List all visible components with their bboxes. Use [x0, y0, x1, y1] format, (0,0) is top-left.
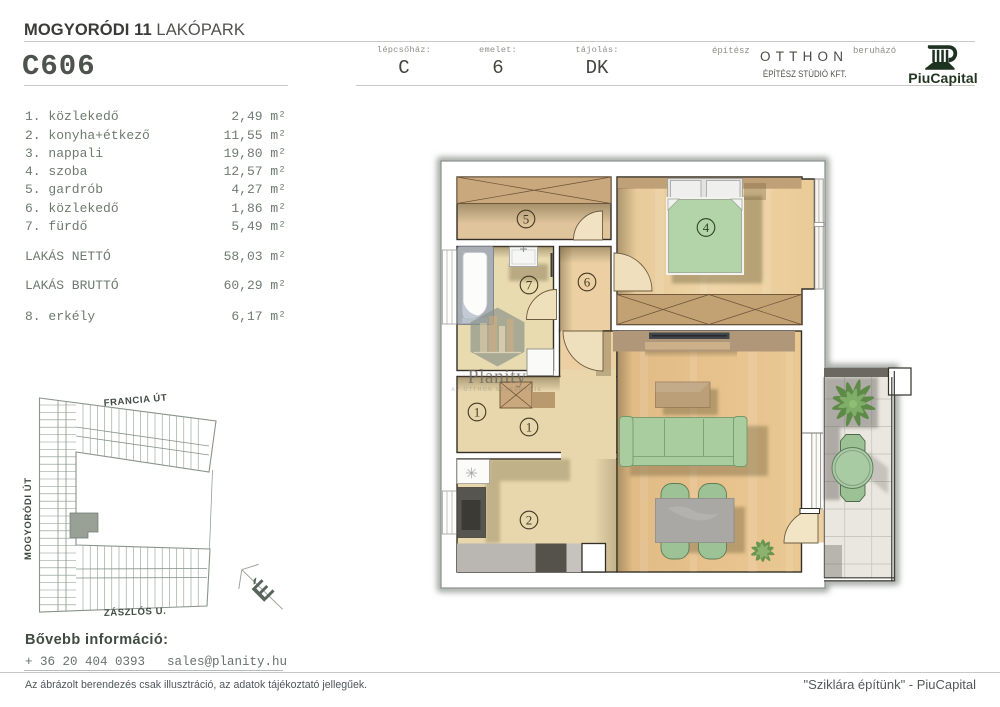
svg-text:AZ OTTHON SZAKÉRTŐJE: AZ OTTHON SZAKÉRTŐJE	[452, 386, 543, 393]
svg-text:2: 2	[526, 513, 533, 528]
svg-text:Planity: Planity	[468, 367, 527, 388]
svg-text:5: 5	[523, 212, 530, 227]
svg-text:4: 4	[703, 220, 710, 235]
svg-text:FRANCIA ÚT: FRANCIA ÚT	[103, 391, 168, 409]
svg-text:MOGYORÓDI ÚT: MOGYORÓDI ÚT	[22, 477, 34, 560]
svg-text:1: 1	[526, 420, 533, 435]
svg-text:1: 1	[474, 405, 481, 420]
svg-text:6: 6	[584, 275, 591, 290]
svg-text:7: 7	[526, 278, 533, 293]
svg-text:ZÁSZLÓS U.: ZÁSZLÓS U.	[104, 605, 167, 619]
